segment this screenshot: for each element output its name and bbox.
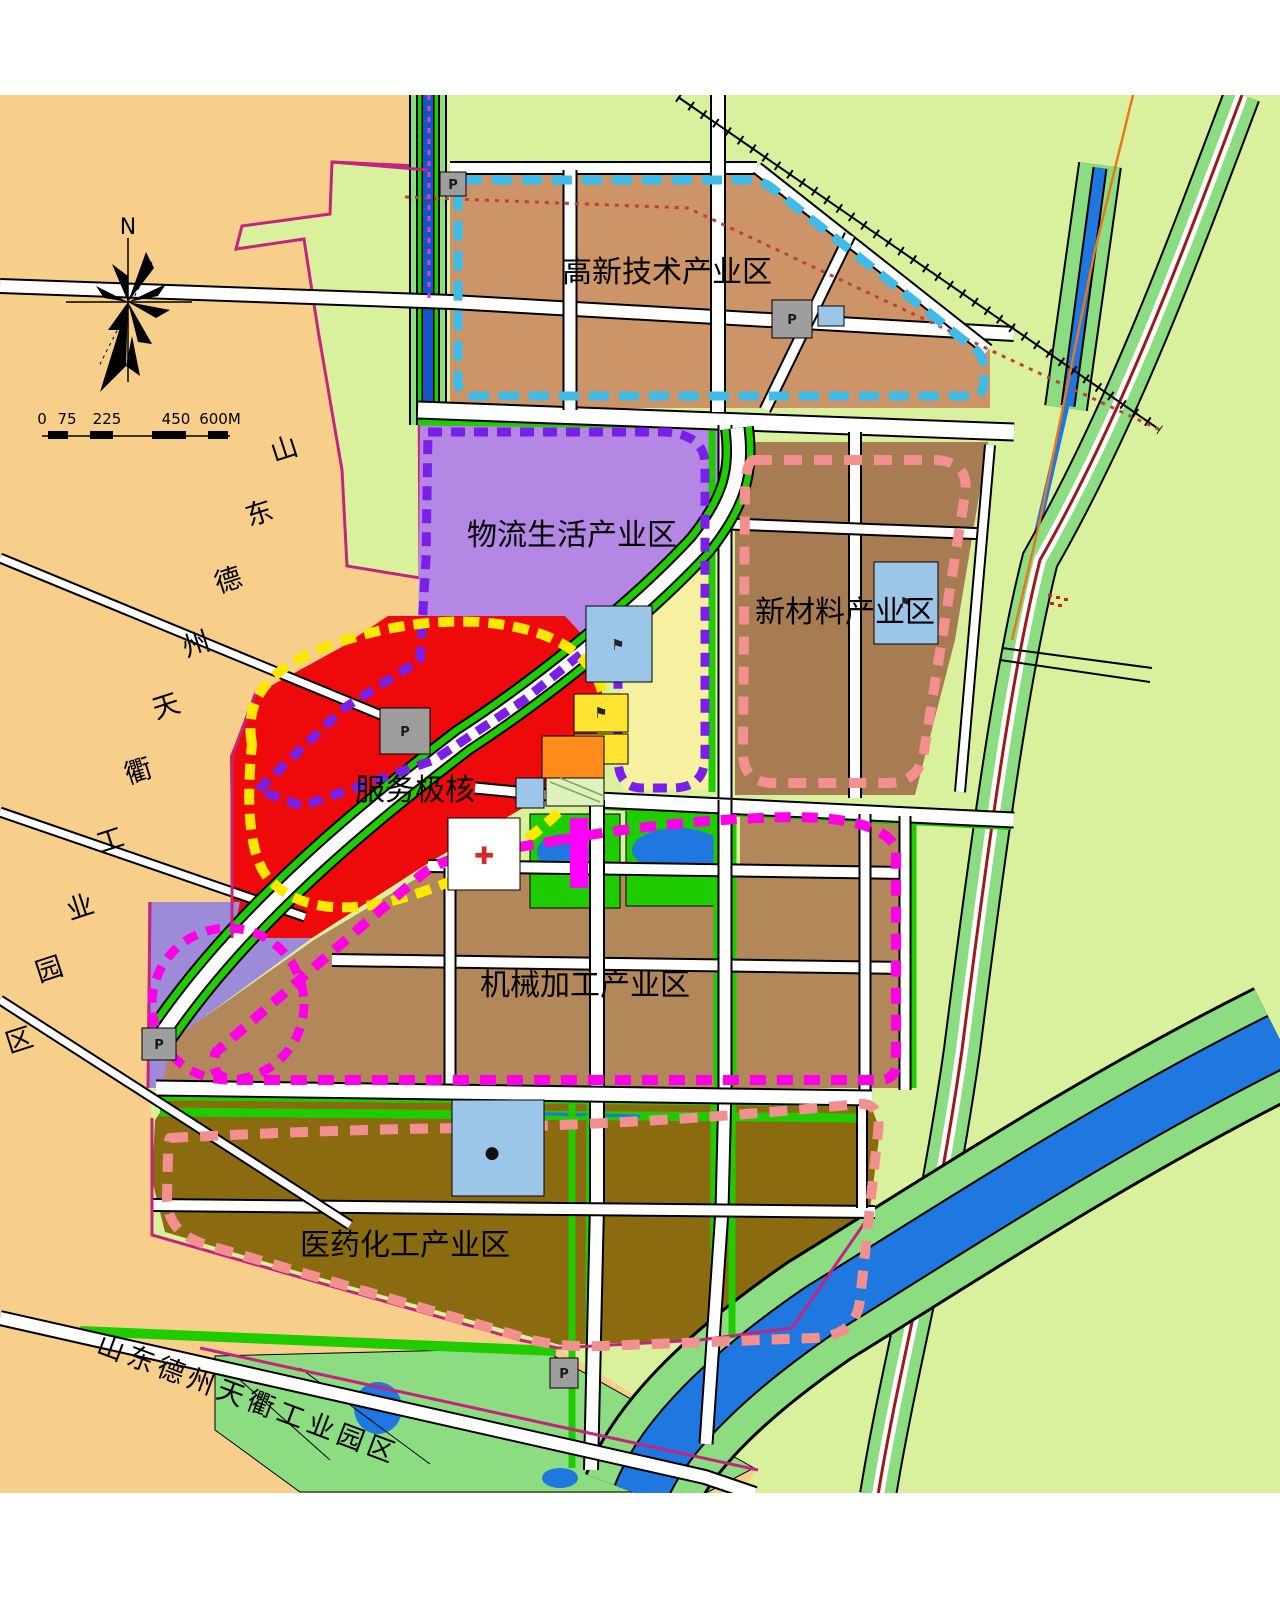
bottom-margin xyxy=(0,1493,1280,1600)
scale-tick: 600M xyxy=(199,410,241,428)
label-fuwu: 服务极核 xyxy=(355,773,475,808)
label-wuliu: 物流生活产业区 xyxy=(467,518,677,553)
parking-icon: P xyxy=(154,1038,164,1053)
pond xyxy=(542,1468,578,1488)
parking-icon: P xyxy=(448,178,458,193)
parking-icon: P xyxy=(787,313,797,328)
parking-icon: P xyxy=(559,1367,569,1382)
scale-tick: 225 xyxy=(93,410,122,428)
planning-map-page: P P P P P ✚ ⚑ ⚑ ⚑ ● 高新技术产业区 物流生活产业区 新材料产… xyxy=(0,0,1280,1600)
facility-icon: ● xyxy=(485,1143,500,1163)
north-label: N xyxy=(120,215,136,240)
parking-icon: P xyxy=(400,725,410,740)
school-icon: ⚑ xyxy=(611,636,624,654)
label-yiyao: 医药化工产业区 xyxy=(300,1228,510,1263)
scale-tick: 75 xyxy=(57,410,76,428)
top-margin xyxy=(0,0,1280,95)
hospital-icon: ✚ xyxy=(474,842,494,870)
scale-tick: 0 xyxy=(37,410,47,428)
label-gaoxin: 高新技术产业区 xyxy=(562,255,772,290)
school-icon: ⚑ xyxy=(594,704,607,722)
planning-map: P P P P P ✚ ⚑ ⚑ ⚑ ● 高新技术产业区 物流生活产业区 新材料产… xyxy=(0,0,1280,1600)
label-jixie: 机械加工产业区 xyxy=(480,968,690,1003)
label-xincailiao: 新材料产业区 xyxy=(755,595,935,630)
magenta-strip-parcel xyxy=(570,818,588,888)
scale-tick: 450 xyxy=(162,410,191,428)
